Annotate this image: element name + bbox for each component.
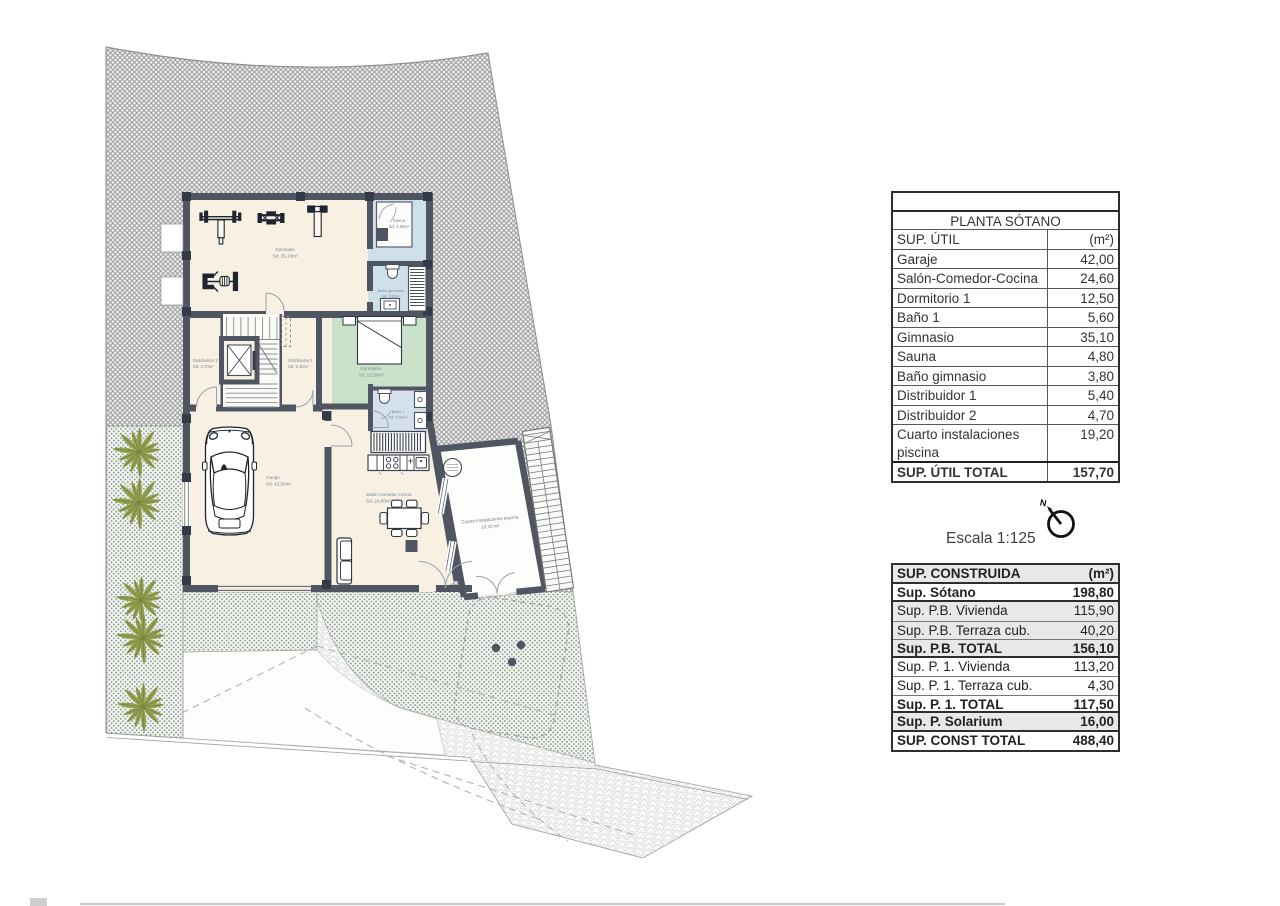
svg-text:Baño gimnasio: Baño gimnasio <box>378 288 405 293</box>
svg-text:Sd: 5,40m²: Sd: 5,40m² <box>288 364 309 369</box>
svg-text:Sd: 35,10m²: Sd: 35,10m² <box>272 254 297 259</box>
svg-text:Garaje: Garaje <box>266 475 280 480</box>
svg-text:Distribuidor 2: Distribuidor 2 <box>193 358 218 363</box>
svg-text:Gimnasio: Gimnasio <box>275 247 295 252</box>
svg-text:Sd: 4,70m²: Sd: 4,70m² <box>193 364 214 369</box>
svg-text:Sd: 3,80m²: Sd: 3,80m² <box>381 294 401 299</box>
svg-text:Sd: 42,00m²: Sd: 42,00m² <box>266 482 291 487</box>
svg-text:Sd: 5,60m²: Sd: 5,60m² <box>388 415 408 420</box>
svg-text:Dormitorio: Dormitorio <box>360 366 382 371</box>
svg-text:Distribuidor 1: Distribuidor 1 <box>288 358 313 363</box>
svg-text:Sauna: Sauna <box>393 218 406 223</box>
svg-text:Salón comedor cocina: Salón comedor cocina <box>366 492 412 497</box>
svg-text:N: N <box>1039 498 1047 509</box>
svg-text:Sd: 12,50m²: Sd: 12,50m² <box>358 373 383 378</box>
svg-text:Baño 1: Baño 1 <box>392 409 405 414</box>
svg-text:Sd: 24,60m²: Sd: 24,60m² <box>366 499 391 504</box>
svg-text:Sd: 4,80m²: Sd: 4,80m² <box>389 224 410 229</box>
